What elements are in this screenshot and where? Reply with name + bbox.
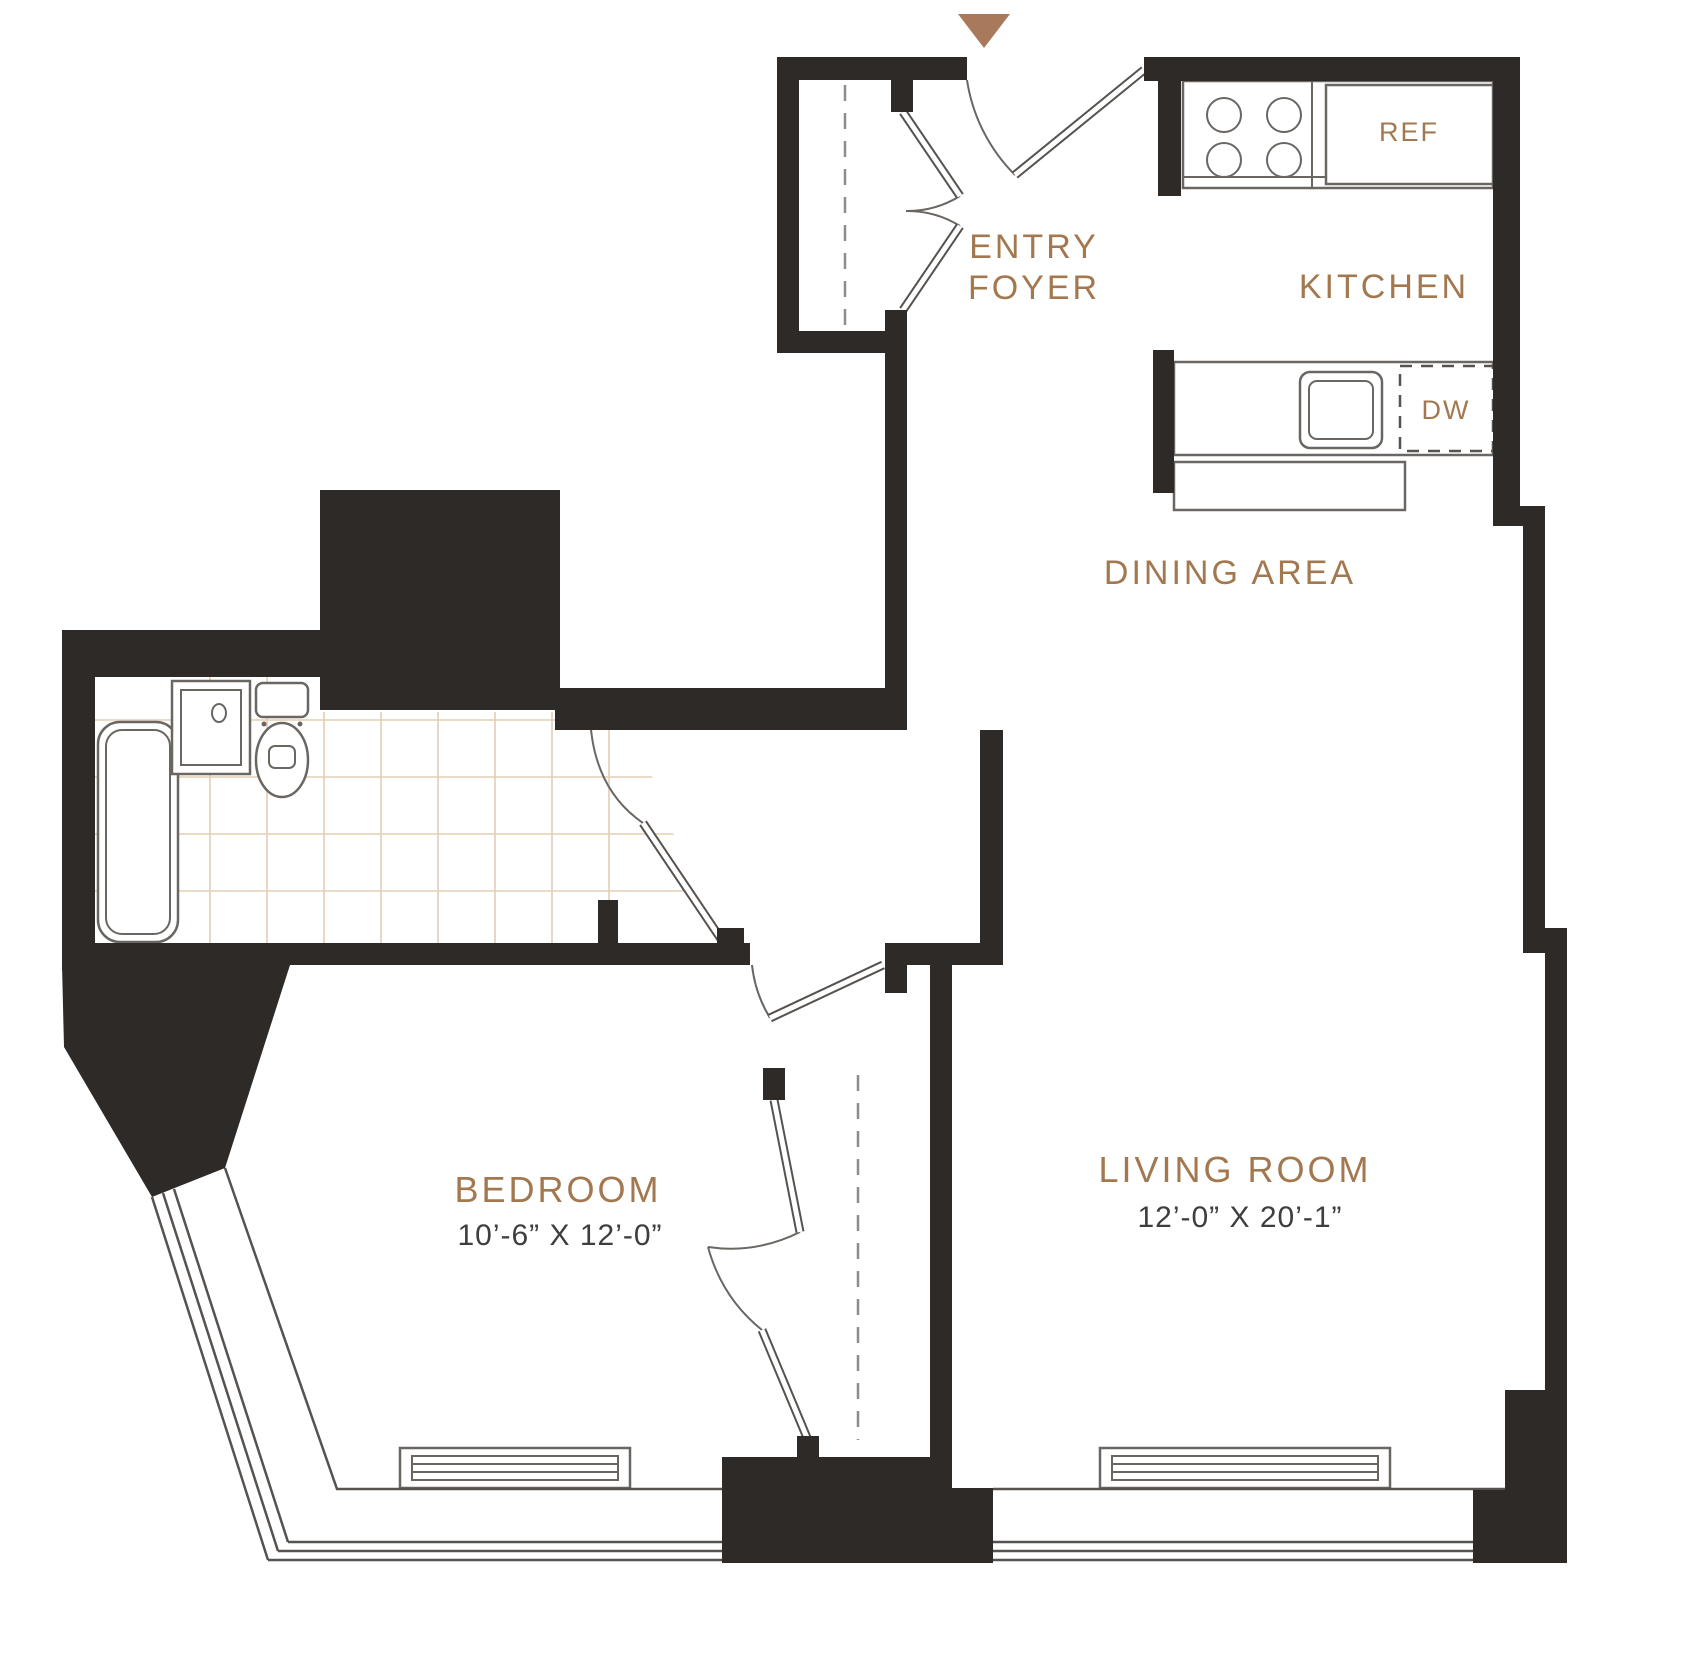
hall-closet-bifold-doors xyxy=(708,1100,808,1440)
living-room-dimensions: 12’-0” X 20’-1” xyxy=(1137,1201,1342,1234)
dw-label: DW xyxy=(1422,395,1471,425)
living-room-radiator xyxy=(1100,1448,1390,1488)
kitchen-sink xyxy=(1300,372,1382,448)
entry-foyer-label-line1: ENTRY xyxy=(969,228,1099,266)
kitchen-label: KITCHEN xyxy=(1299,268,1469,306)
entry-door xyxy=(967,70,1144,175)
toilet xyxy=(256,683,308,797)
floor-plan-canvas: ENTRY FOYER KITCHEN REF DW DINING AREA B… xyxy=(0,0,1700,1672)
ref-label: REF xyxy=(1379,117,1439,147)
bedroom-radiator xyxy=(400,1448,630,1488)
entry-closet-bifold-doors xyxy=(903,112,960,310)
bathtub xyxy=(98,722,178,942)
bedroom-door xyxy=(752,965,883,1018)
living-room-label: LIVING ROOM xyxy=(1098,1149,1371,1190)
dining-area-label: DINING AREA xyxy=(1104,554,1356,592)
living-room-window xyxy=(993,1489,1505,1560)
bedroom-dimensions: 10’-6” X 12’-0” xyxy=(457,1219,662,1252)
floor-plan: ENTRY FOYER KITCHEN REF DW DINING AREA B… xyxy=(0,0,1700,1672)
entry-marker-icon xyxy=(958,14,1010,48)
kitchen-island xyxy=(1174,462,1405,510)
room-labels: ENTRY FOYER KITCHEN REF DW DINING AREA B… xyxy=(454,117,1470,1252)
bedroom-label: BEDROOM xyxy=(454,1169,661,1210)
bathroom-sink xyxy=(172,681,250,774)
entry-foyer-label-line2: FOYER xyxy=(968,269,1100,307)
